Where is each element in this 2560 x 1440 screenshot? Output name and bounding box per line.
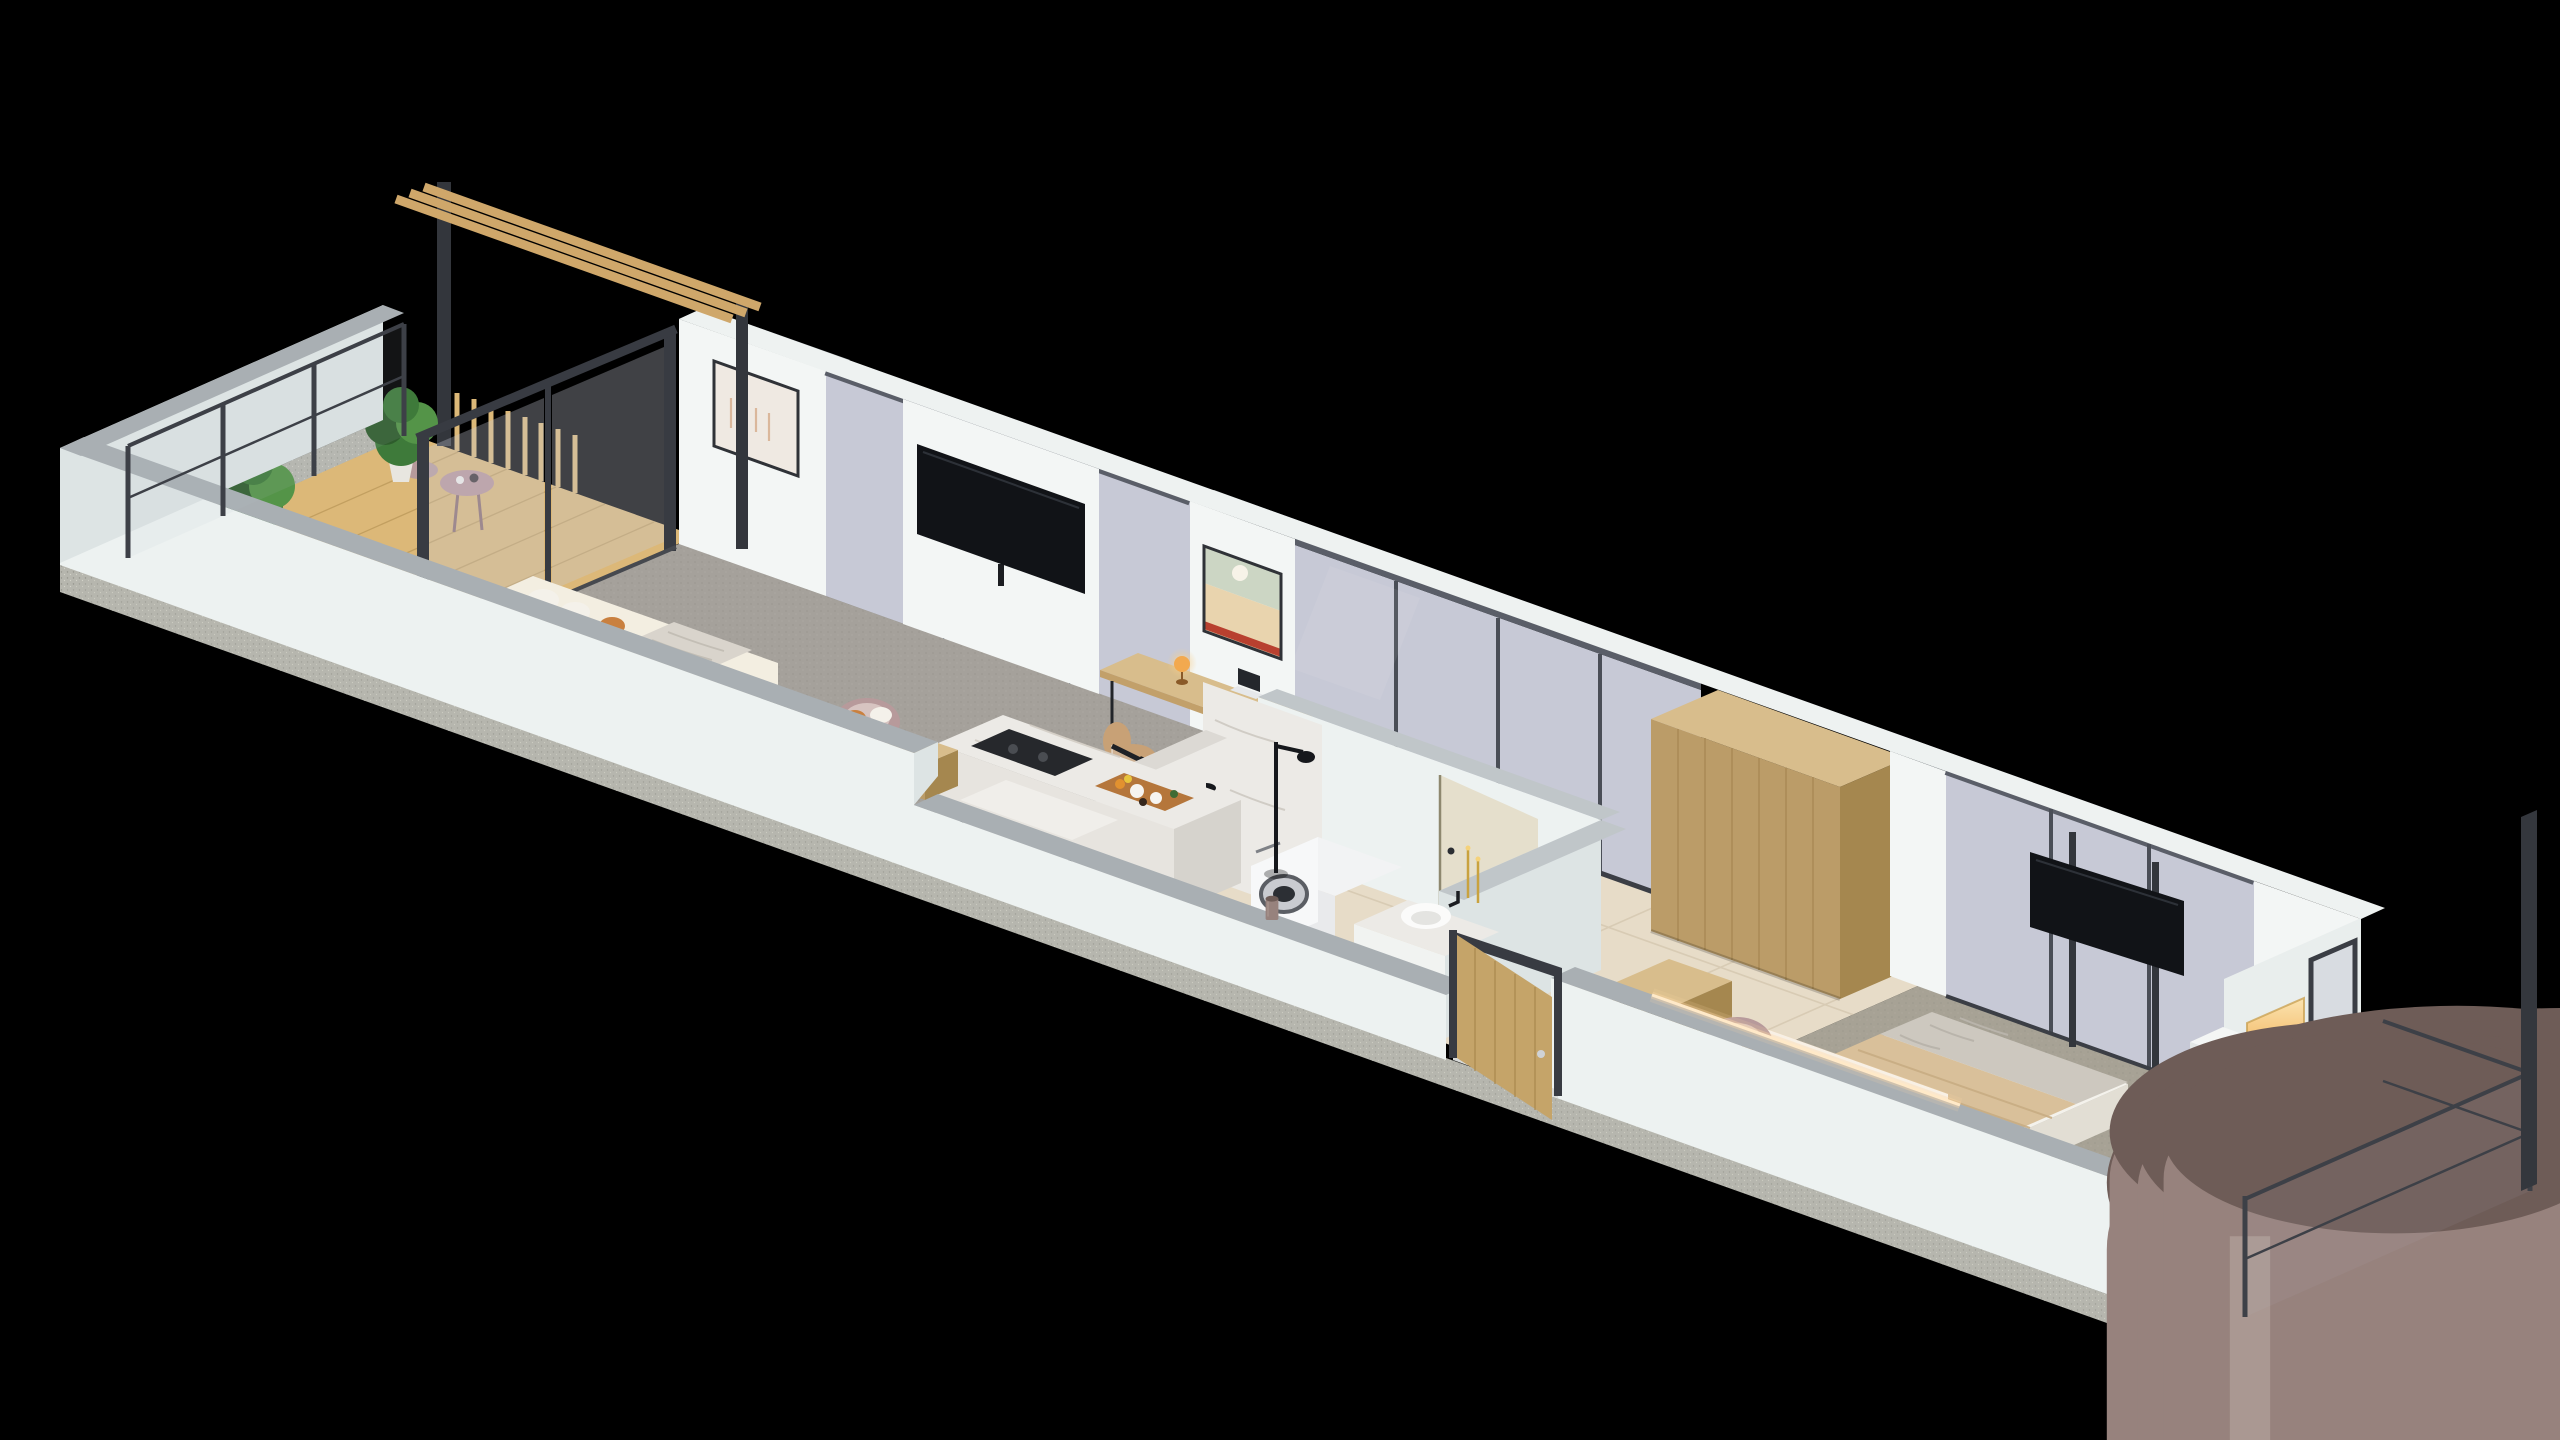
door-frame: [1554, 968, 1562, 1096]
door-handle: [1537, 1050, 1545, 1058]
bedroom-left-pillar: [1890, 751, 1953, 999]
apartment-render-canvas: [0, 0, 2560, 1440]
door-frame: [1449, 930, 1457, 1058]
apartment-3d-floorplan: [0, 0, 2560, 1440]
tall-corner-post: [2521, 810, 2537, 1191]
pergola-post: [736, 298, 748, 549]
